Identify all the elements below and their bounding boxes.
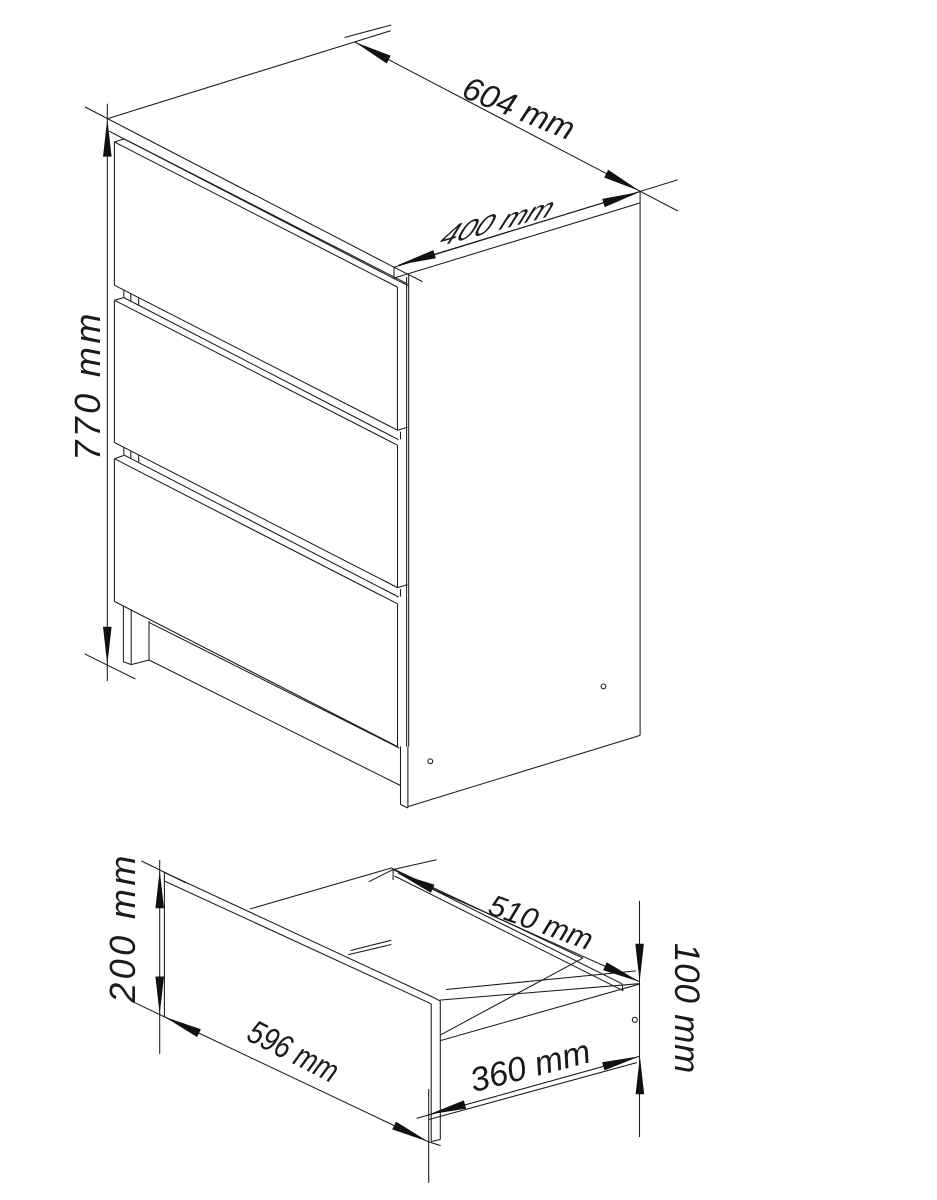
- svg-text:100 mm: 100 mm: [667, 943, 706, 1074]
- svg-text:770 mm: 770 mm: [67, 310, 108, 460]
- svg-text:200 mm: 200 mm: [102, 852, 143, 1003]
